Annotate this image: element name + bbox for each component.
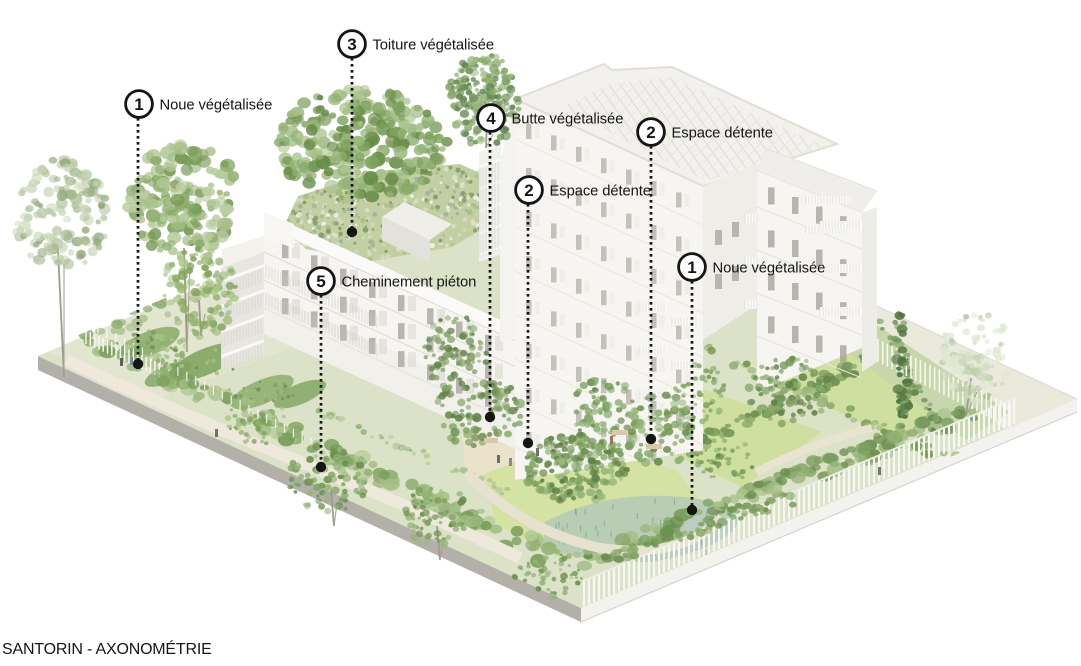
svg-text:Espace détente: Espace détente: [672, 126, 773, 142]
svg-text:2: 2: [646, 123, 655, 142]
svg-text:3: 3: [347, 35, 356, 54]
svg-text:Noue végétalisée: Noue végétalisée: [160, 98, 273, 114]
svg-text:Butte végétalisée: Butte végétalisée: [512, 112, 624, 128]
svg-text:4: 4: [486, 109, 496, 128]
svg-text:2: 2: [524, 181, 533, 200]
svg-text:1: 1: [687, 258, 696, 277]
svg-text:Noue végétalisée: Noue végétalisée: [713, 261, 826, 277]
svg-text:1: 1: [134, 95, 143, 114]
svg-text:SANTORIN - AXONOMÉTRIE: SANTORIN - AXONOMÉTRIE: [2, 639, 212, 658]
svg-text:Espace détente: Espace détente: [550, 184, 651, 200]
svg-text:5: 5: [316, 272, 325, 291]
svg-text:Cheminement piéton: Cheminement piéton: [342, 275, 477, 291]
svg-text:Toiture végétalisée: Toiture végétalisée: [373, 38, 494, 54]
